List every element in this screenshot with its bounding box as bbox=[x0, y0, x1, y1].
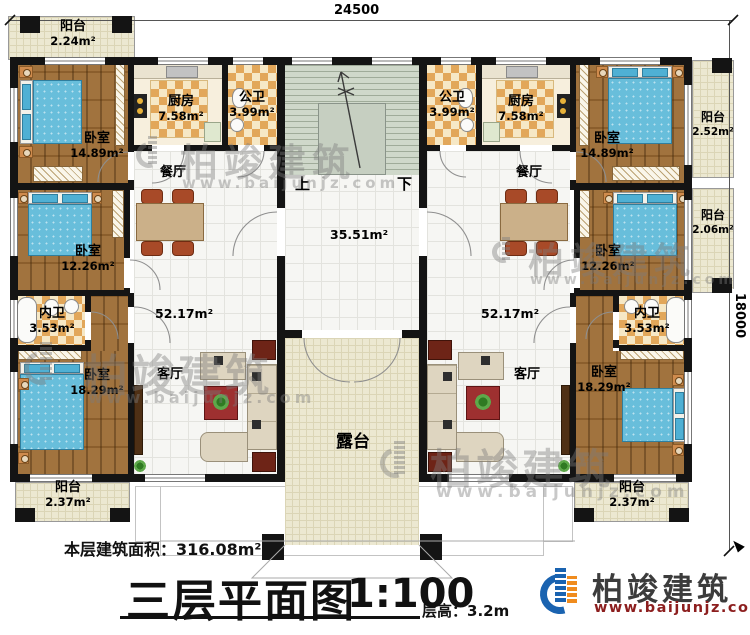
room-area: 18.29m² bbox=[577, 380, 630, 394]
room-name: 阳台 bbox=[55, 480, 81, 495]
dining-chair bbox=[141, 241, 163, 256]
wall bbox=[264, 145, 277, 151]
end-table bbox=[428, 452, 452, 472]
balcony-post bbox=[112, 16, 132, 33]
room-area: 12.26m² bbox=[581, 259, 634, 273]
nightstand bbox=[603, 192, 613, 204]
balcony-post bbox=[20, 16, 40, 33]
room-area: 2.37m² bbox=[609, 495, 654, 509]
room-area: 3.99m² bbox=[229, 105, 274, 119]
dining-chair bbox=[536, 241, 558, 256]
wall bbox=[124, 186, 130, 258]
room-label-balcony-bl: 阳台 2.37m² bbox=[33, 480, 103, 511]
nightstand bbox=[672, 444, 684, 456]
pillow bbox=[617, 194, 643, 203]
stair-treads bbox=[285, 65, 419, 103]
dining-table bbox=[136, 203, 204, 241]
wardrobe bbox=[33, 166, 83, 182]
room-label-bedroom-ml: 卧室 12.26m² bbox=[53, 244, 123, 275]
room-area: 2.37m² bbox=[45, 495, 90, 509]
room-area: 14.89m² bbox=[70, 146, 123, 160]
balcony-post bbox=[15, 508, 35, 522]
balcony-post bbox=[110, 508, 130, 522]
room-name: 内卫 bbox=[39, 306, 65, 321]
floor-height-value: 3.2m bbox=[467, 602, 509, 620]
room-area: 2.06m² bbox=[692, 224, 733, 236]
window[interactable] bbox=[372, 57, 412, 65]
room-label-balcony-r1: 阳台 2.52m² bbox=[690, 110, 736, 139]
nightstand bbox=[19, 66, 33, 78]
armchair bbox=[200, 352, 246, 380]
wall bbox=[570, 293, 576, 307]
nightstand bbox=[92, 192, 102, 204]
pillow bbox=[647, 194, 673, 203]
balcony-post bbox=[712, 58, 732, 73]
wall bbox=[552, 145, 570, 151]
room-area: 7.58m² bbox=[498, 109, 543, 123]
dining-chair bbox=[172, 241, 194, 256]
nightstand bbox=[18, 192, 28, 204]
room-label-balcony-r2: 阳台 2.06m² bbox=[690, 208, 736, 237]
pillow bbox=[675, 392, 684, 414]
window[interactable] bbox=[233, 57, 263, 65]
fridge bbox=[483, 122, 500, 142]
fridge bbox=[204, 122, 221, 142]
room-area: 3.53m² bbox=[624, 321, 669, 335]
room-label-dining-l: 餐厅 bbox=[143, 165, 203, 180]
window[interactable] bbox=[441, 57, 471, 65]
cushion bbox=[443, 420, 452, 429]
room-label-terrace: 露台 bbox=[336, 427, 370, 452]
corridor-left-floor bbox=[91, 296, 128, 351]
wall bbox=[277, 57, 285, 208]
room-area: 7.58m² bbox=[158, 109, 203, 123]
room-label-bath-private-l: 内卫 3.53m² bbox=[20, 306, 84, 337]
pillow bbox=[62, 194, 88, 203]
nightstand bbox=[19, 146, 33, 158]
room-label-bath-public-r: 公卫 3.99m² bbox=[422, 90, 482, 121]
wardrobe bbox=[112, 190, 124, 238]
nightstand bbox=[596, 66, 608, 78]
floor-plan-page: 24500 18000 bbox=[0, 0, 750, 635]
balcony-post bbox=[669, 508, 689, 522]
wall bbox=[184, 145, 228, 151]
window[interactable] bbox=[145, 474, 205, 482]
room-name: 卧室 bbox=[595, 244, 621, 259]
room-area: 18.29m² bbox=[70, 383, 123, 397]
cushion bbox=[443, 372, 452, 381]
dining-chair bbox=[505, 189, 527, 204]
stairs-up-label: 上 bbox=[295, 173, 310, 194]
room-name: 卧室 bbox=[594, 131, 620, 146]
window[interactable] bbox=[600, 57, 660, 65]
room-name: 内卫 bbox=[634, 306, 660, 321]
window[interactable] bbox=[158, 57, 208, 65]
wall bbox=[580, 290, 692, 296]
room-label-bedroom-tl: 卧室 14.89m² bbox=[62, 131, 132, 162]
room-label-bath-private-r: 内卫 3.53m² bbox=[615, 306, 679, 337]
room-name: 客厅 bbox=[514, 367, 540, 382]
cushion bbox=[214, 356, 223, 365]
nightstand bbox=[18, 378, 29, 390]
room-label-kitchen-l: 厨房 7.58m² bbox=[146, 94, 216, 125]
wall bbox=[134, 145, 152, 151]
floor-area-text: 本层建筑面积：316.08m² bbox=[64, 536, 261, 560]
wall bbox=[419, 145, 440, 151]
room-name: 厨房 bbox=[508, 94, 534, 109]
room-name: 卧室 bbox=[84, 131, 110, 146]
end-table bbox=[428, 340, 452, 360]
wall bbox=[10, 345, 91, 351]
stair-treads bbox=[285, 103, 318, 175]
room-name: 餐厅 bbox=[160, 165, 186, 180]
wall bbox=[482, 145, 520, 151]
nightstand bbox=[672, 374, 684, 386]
wall bbox=[419, 256, 427, 477]
balcony-post bbox=[574, 508, 594, 522]
room-name: 阳台 bbox=[619, 480, 645, 495]
wardrobe bbox=[612, 166, 680, 181]
room-area: 14.89m² bbox=[580, 146, 633, 160]
wall bbox=[10, 57, 692, 65]
end-table bbox=[252, 340, 276, 360]
pillow bbox=[22, 84, 31, 110]
room-name: 阳台 bbox=[701, 208, 725, 222]
room-name: 卧室 bbox=[84, 368, 110, 383]
balcony-post bbox=[712, 278, 732, 293]
plant bbox=[213, 394, 229, 410]
wall bbox=[576, 183, 692, 190]
pillow bbox=[32, 194, 58, 203]
brand-building-orange bbox=[567, 576, 577, 603]
window[interactable] bbox=[10, 198, 18, 256]
room-label-kitchen-r: 厨房 7.58m² bbox=[486, 94, 556, 125]
floor-height-text: 层高：3.2m bbox=[422, 600, 509, 621]
wall bbox=[228, 145, 238, 151]
terrace-post bbox=[420, 534, 442, 560]
plant bbox=[475, 394, 491, 410]
room-label-balcony-br: 阳台 2.37m² bbox=[597, 480, 667, 511]
page-title: 三层平面图 bbox=[126, 565, 356, 629]
room-name: 阳台 bbox=[60, 19, 86, 34]
title-underline bbox=[120, 616, 420, 619]
room-name: 客厅 bbox=[157, 367, 183, 382]
stair-landing bbox=[318, 103, 386, 175]
nightstand bbox=[672, 66, 684, 78]
wall bbox=[285, 330, 302, 338]
wall bbox=[466, 145, 482, 151]
room-name: 卧室 bbox=[75, 244, 101, 259]
plant bbox=[558, 460, 570, 472]
plant bbox=[134, 460, 146, 472]
kitchen-sink bbox=[506, 66, 538, 78]
room-label-living-r: 客厅 bbox=[497, 367, 557, 382]
pillow bbox=[612, 68, 638, 77]
room-name: 卧室 bbox=[591, 365, 617, 380]
room-label-dining-r: 餐厅 bbox=[499, 165, 559, 180]
window[interactable] bbox=[10, 372, 18, 444]
window[interactable] bbox=[496, 57, 546, 65]
dimension-top: 24500 bbox=[330, 3, 383, 18]
floor-area-label: 本层建筑面积： bbox=[64, 540, 176, 559]
window[interactable] bbox=[292, 57, 332, 65]
brand-logo-icon bbox=[540, 564, 590, 620]
dining-table bbox=[500, 203, 568, 241]
room-area: 3.53m² bbox=[29, 321, 74, 335]
dining-chair bbox=[141, 189, 163, 204]
stove-burner bbox=[137, 108, 143, 114]
window[interactable] bbox=[449, 474, 509, 482]
stove-burner bbox=[560, 108, 566, 114]
dining-chair bbox=[172, 189, 194, 204]
chaise bbox=[456, 432, 504, 462]
kitchen-sink bbox=[166, 66, 198, 78]
sofa bbox=[427, 364, 457, 450]
mouse-cursor bbox=[730, 538, 745, 553]
wall bbox=[419, 57, 427, 208]
pillow bbox=[675, 418, 684, 440]
wall bbox=[10, 290, 130, 296]
wall bbox=[10, 183, 134, 190]
window[interactable] bbox=[45, 57, 105, 65]
chaise bbox=[200, 432, 248, 462]
wall bbox=[402, 330, 419, 338]
room-name: 公卫 bbox=[239, 90, 265, 105]
room-label-living-l: 客厅 bbox=[140, 367, 200, 382]
room-area: 2.24m² bbox=[50, 34, 95, 48]
dining-chair bbox=[505, 241, 527, 256]
dining-chair bbox=[536, 189, 558, 204]
stove-burner bbox=[137, 98, 143, 104]
corridor-right-floor bbox=[576, 296, 613, 351]
room-label-bedroom-mr: 卧室 12.26m² bbox=[573, 244, 643, 275]
area-label-living-l: 52.17m² bbox=[155, 306, 213, 321]
room-label-bedroom-tr: 卧室 14.89m² bbox=[572, 131, 642, 162]
pillow bbox=[24, 364, 50, 373]
room-name: 阳台 bbox=[701, 110, 725, 124]
floor-height-label: 层高： bbox=[422, 602, 467, 620]
room-name: 公卫 bbox=[439, 90, 465, 105]
room-name: 餐厅 bbox=[516, 165, 542, 180]
window[interactable] bbox=[684, 300, 692, 338]
wall bbox=[128, 343, 134, 474]
floor-area-value: 316.08m² bbox=[176, 540, 261, 559]
room-label-bedroom-br: 卧室 18.29m² bbox=[569, 365, 639, 396]
room-area: 3.99m² bbox=[429, 105, 474, 119]
pillow bbox=[642, 68, 668, 77]
pillow bbox=[22, 114, 31, 140]
stove-burner bbox=[560, 98, 566, 104]
wall bbox=[619, 345, 692, 351]
brand-url: www.baijunjz.com bbox=[594, 600, 750, 616]
wall bbox=[570, 343, 576, 474]
room-label-balcony-tl: 阳台 2.24m² bbox=[38, 19, 108, 50]
area-label-living-r: 52.17m² bbox=[481, 306, 539, 321]
wall bbox=[277, 256, 285, 477]
window[interactable] bbox=[684, 372, 692, 444]
bed bbox=[622, 388, 673, 442]
end-table bbox=[252, 452, 276, 472]
dimension-right: 18000 bbox=[732, 289, 747, 342]
cushion bbox=[252, 420, 261, 429]
terrace-post bbox=[262, 534, 284, 560]
tv-cabinet bbox=[134, 385, 143, 455]
room-area: 2.52m² bbox=[692, 126, 733, 138]
room-label-bedroom-bl: 卧室 18.29m² bbox=[62, 368, 132, 399]
window[interactable] bbox=[10, 88, 18, 142]
room-name: 厨房 bbox=[168, 94, 194, 109]
cushion bbox=[252, 372, 261, 381]
brand-building-blue bbox=[555, 566, 566, 602]
room-area: 12.26m² bbox=[61, 259, 114, 273]
window[interactable] bbox=[10, 300, 18, 338]
cushion bbox=[481, 356, 490, 365]
nightstand bbox=[18, 452, 29, 464]
area-label-hall: 35.51m² bbox=[330, 227, 388, 242]
stairs-down-label: 下 bbox=[397, 173, 412, 194]
stair-treads bbox=[386, 103, 419, 175]
room-label-bath-public-l: 公卫 3.99m² bbox=[222, 90, 282, 121]
